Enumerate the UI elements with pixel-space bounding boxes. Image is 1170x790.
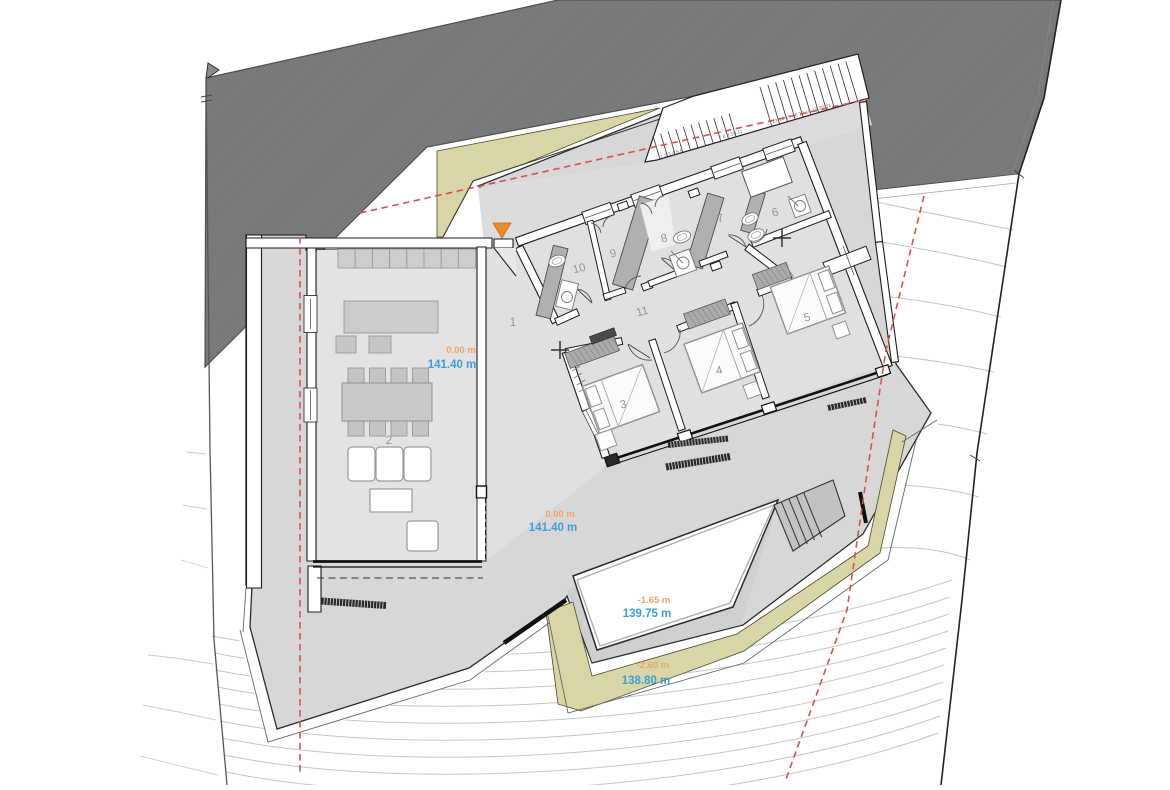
svg-text:0.00 m: 0.00 m (446, 345, 476, 356)
svg-text:139.75 m: 139.75 m (623, 608, 672, 620)
svg-text:138.80 m: 138.80 m (622, 675, 671, 687)
svg-text:141.40 m: 141.40 m (428, 359, 477, 371)
svg-text:0.00 m: 0.00 m (545, 509, 575, 520)
svg-text:-1.65 m: -1.65 m (638, 595, 671, 606)
svg-text:-2.60 m: -2.60 m (637, 660, 670, 671)
svg-text:1: 1 (510, 317, 516, 329)
svg-text:2: 2 (386, 435, 392, 447)
svg-text:141.40 m: 141.40 m (529, 522, 578, 534)
